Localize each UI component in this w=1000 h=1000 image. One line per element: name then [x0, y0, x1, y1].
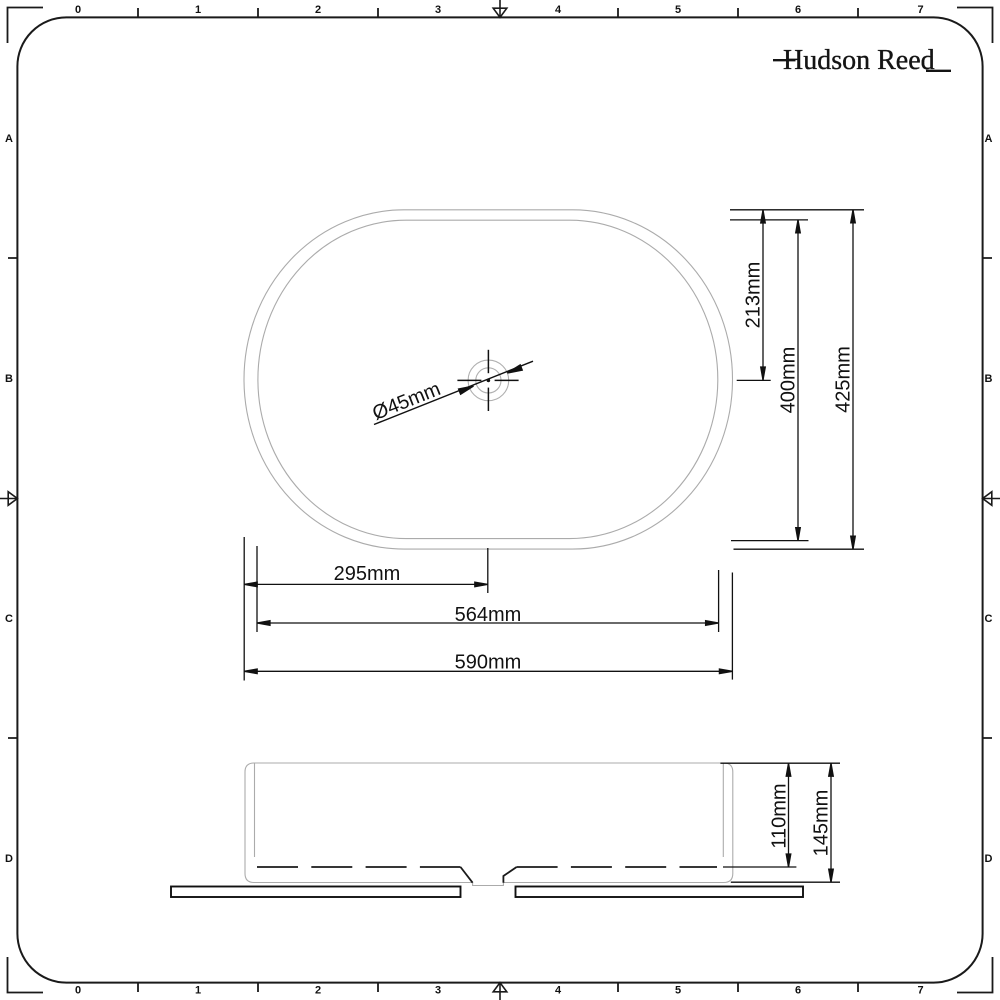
svg-text:2: 2: [315, 985, 321, 997]
svg-text:B: B: [5, 373, 13, 385]
svg-text:5: 5: [675, 4, 681, 16]
svg-text:425mm: 425mm: [833, 346, 855, 413]
svg-text:295mm: 295mm: [334, 563, 401, 585]
svg-text:400mm: 400mm: [778, 347, 800, 414]
svg-text:145mm: 145mm: [811, 790, 833, 857]
svg-text:7: 7: [917, 985, 923, 997]
svg-text:213mm: 213mm: [743, 262, 765, 329]
svg-text:4: 4: [555, 985, 562, 997]
svg-text:D: D: [985, 853, 993, 865]
svg-text:0: 0: [75, 4, 81, 16]
svg-text:0: 0: [75, 985, 81, 997]
svg-text:6: 6: [795, 985, 801, 997]
svg-text:1: 1: [195, 985, 201, 997]
svg-text:110mm: 110mm: [769, 783, 791, 848]
svg-text:C: C: [985, 613, 993, 625]
svg-text:Hudson Reed: Hudson Reed: [783, 45, 935, 76]
svg-text:A: A: [985, 133, 993, 145]
svg-text:4: 4: [555, 4, 562, 16]
svg-text:590mm: 590mm: [455, 651, 522, 673]
svg-text:B: B: [985, 373, 993, 385]
svg-text:3: 3: [435, 985, 441, 997]
svg-text:3: 3: [435, 4, 441, 16]
svg-text:D: D: [5, 853, 13, 865]
svg-text:6: 6: [795, 4, 801, 16]
svg-text:7: 7: [917, 4, 923, 16]
svg-text:5: 5: [675, 985, 681, 997]
svg-text:1: 1: [195, 4, 201, 16]
svg-text:C: C: [5, 613, 13, 625]
svg-text:A: A: [5, 133, 13, 145]
svg-text:564mm: 564mm: [455, 604, 522, 626]
svg-text:2: 2: [315, 4, 321, 16]
